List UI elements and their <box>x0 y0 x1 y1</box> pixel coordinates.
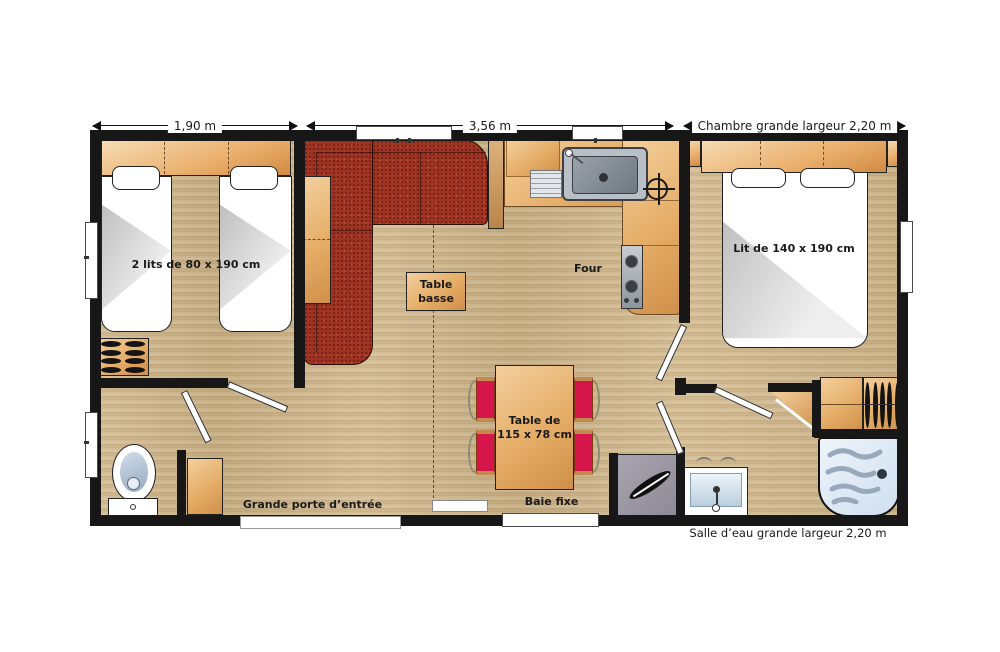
double-bed-label: Lit de 140 x 190 cm <box>714 242 874 255</box>
double-headboard-shelf <box>701 139 887 173</box>
burner <box>625 255 638 268</box>
burner <box>625 280 638 293</box>
shelf-divider <box>823 141 824 171</box>
dimension-left-label: 1,90 m <box>168 119 222 133</box>
hanger-rod <box>864 404 901 405</box>
wall-bottom <box>90 515 908 526</box>
dresser <box>97 338 149 376</box>
axis-dashed-line <box>433 150 434 508</box>
window-left-wc <box>85 412 98 478</box>
sink-drain <box>599 173 608 182</box>
wall-bedroom-left <box>294 130 305 388</box>
washbasin-faucet <box>713 486 720 493</box>
sofa-seam <box>420 152 421 224</box>
washbasin-drain-ring <box>712 504 720 512</box>
wall-right <box>897 130 908 526</box>
toilet-seat-dot <box>127 477 140 490</box>
sofa-panel-dash <box>303 239 330 240</box>
burner-dot <box>624 298 629 303</box>
wardrobe-shelf-line <box>821 404 862 405</box>
dining-chair <box>476 430 495 475</box>
shower-room-label: Salle d’eau grande largeur 2,20 m <box>683 526 893 540</box>
dining-chair <box>574 430 593 475</box>
floor-plan: 1,90 m 3,56 m Chambre grande largeur 2,2… <box>0 0 1000 652</box>
wardrobe-shelves <box>820 377 863 433</box>
dimension-right-label: Chambre grande largeur 2,20 m <box>692 119 898 133</box>
twin-beds-label: 2 lits de 80 x 190 cm <box>96 258 296 271</box>
cistern-button <box>130 504 136 510</box>
single-bed-right <box>219 176 292 332</box>
coffee-table: Table basse <box>406 272 466 311</box>
dimension-living-label: 3,56 m <box>463 119 517 133</box>
pillow <box>112 166 160 190</box>
entrance-door-label: Grande porte d’entrée <box>235 498 390 511</box>
window-tick <box>84 256 89 259</box>
pillow <box>230 166 278 190</box>
single-bed-left <box>101 176 172 332</box>
coffee-table-label-1: Table <box>407 278 465 291</box>
fixed-bay-window <box>502 513 599 527</box>
window-tick <box>594 138 597 143</box>
shelf-divider <box>228 142 229 174</box>
burner-dot <box>634 298 639 303</box>
window-right-bedroom <box>900 221 913 293</box>
pillow <box>731 168 786 188</box>
wall-wc-partition <box>177 450 186 520</box>
shower-tray-icon <box>818 437 900 517</box>
dining-table-label-2: 115 x 78 cm <box>496 428 573 441</box>
window-tick <box>408 138 411 143</box>
wc-cabinet <box>187 458 223 515</box>
sofa-seam <box>316 152 486 153</box>
dining-chair <box>574 377 593 422</box>
wall-hall-h <box>675 384 717 393</box>
dimension-right-room: Chambre grande largeur 2,20 m <box>684 119 905 133</box>
shelf-divider <box>760 141 761 171</box>
wall-basin-left <box>676 447 685 523</box>
dimension-left-room: 1,90 m <box>93 119 297 133</box>
dining-chair <box>476 377 495 422</box>
double-bed <box>722 172 868 348</box>
door-threshold <box>432 500 488 512</box>
coffee-table-label-2: basse <box>407 292 465 305</box>
dining-table-label-1: Table de <box>496 414 573 427</box>
washbasin-hose <box>720 457 736 469</box>
fixed-bay-label: Baie fixe <box>503 495 600 508</box>
sofa-end-shelf <box>488 139 504 229</box>
sink-drainboard <box>530 170 562 198</box>
wall-wardrobe-shower <box>814 429 908 438</box>
dimension-living: 3,56 m <box>307 119 673 133</box>
entrance-door-opening <box>240 516 401 529</box>
wall-bedroom-left-bottom <box>90 378 228 388</box>
window-tick <box>84 441 89 444</box>
oven-label: Four <box>565 262 611 275</box>
wall-kitchen-bedroom <box>679 130 690 323</box>
pillow <box>800 168 855 188</box>
washbasin-hose <box>696 457 712 469</box>
washbasin-faucet-stem <box>716 493 718 504</box>
shelf-divider <box>164 142 165 174</box>
crosshair-line-v <box>658 173 660 205</box>
sofa-side-panel <box>302 176 331 304</box>
window-tick <box>396 138 399 143</box>
dining-table: Table de 115 x 78 cm <box>495 365 574 490</box>
window-left-bedroom <box>85 222 98 299</box>
wall-bath-left <box>609 453 618 523</box>
